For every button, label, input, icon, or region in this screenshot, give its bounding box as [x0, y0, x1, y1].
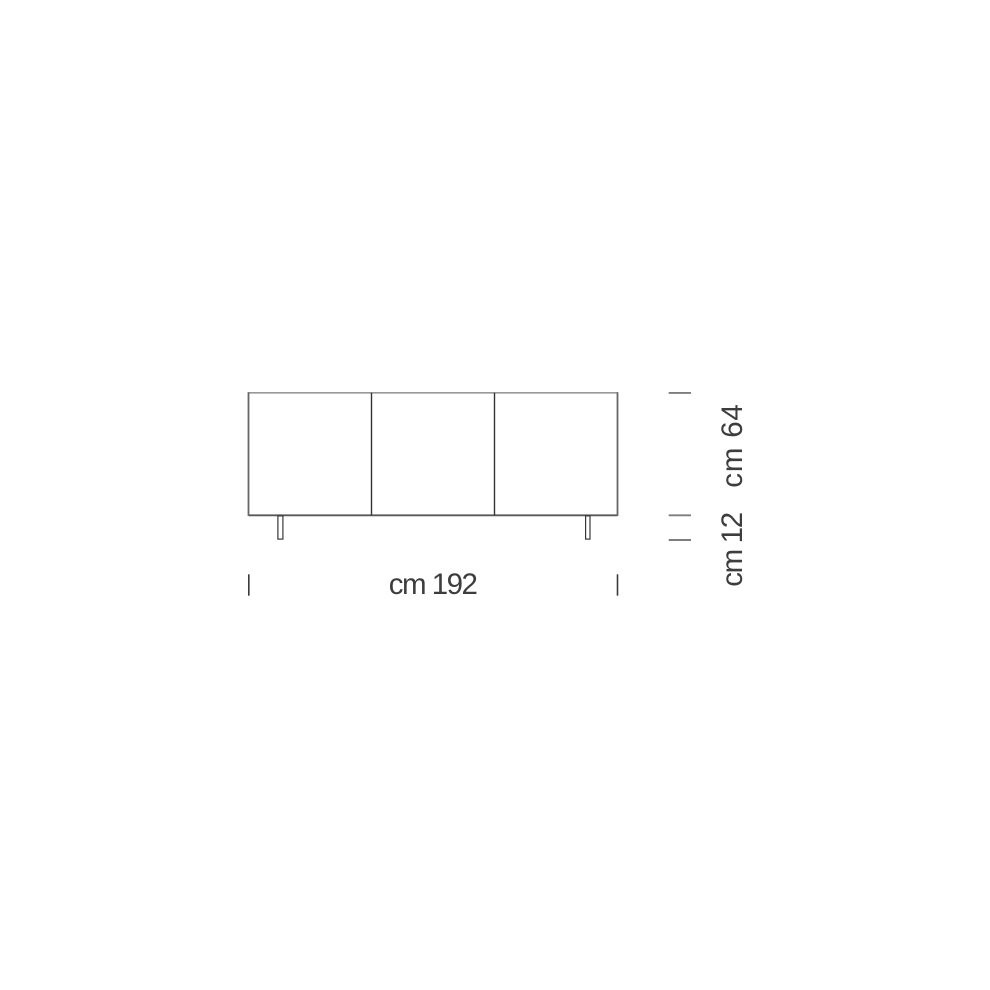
svg-text:cm 192: cm 192 — [389, 568, 477, 601]
svg-text:cm 12: cm 12 — [716, 513, 749, 587]
svg-text:cm 64: cm 64 — [716, 403, 749, 487]
